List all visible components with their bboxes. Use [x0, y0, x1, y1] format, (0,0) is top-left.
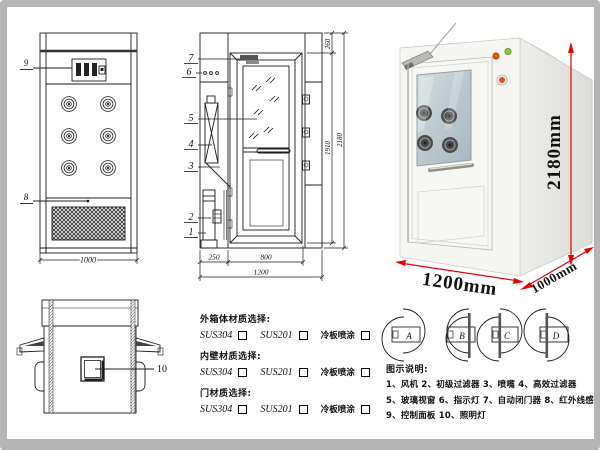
door-config-A[interactable]: A	[382, 309, 425, 361]
callout-4-label: 4	[189, 139, 194, 150]
legend-line: 1、风机 2、初级过滤器 3、喷嘴 4、高效过滤器	[386, 378, 594, 394]
material-option-label: SUS304	[200, 367, 235, 378]
material-group-outer-box: 外箱体材质选择: SUS304 SUS201 冷板喷涂	[200, 312, 370, 341]
door-wing-right	[136, 338, 163, 355]
material-group-title: 外箱体材质选择:	[200, 312, 370, 325]
material-option-label: 冷板喷涂	[321, 403, 358, 415]
material-options-row: SUS304 SUS201 冷板喷涂	[200, 329, 370, 341]
door-config-D[interactable]: D	[524, 309, 569, 361]
photo-height-dim: 2180mm	[544, 114, 565, 190]
door-section	[228, 53, 310, 243]
service-column	[201, 72, 230, 248]
material-option-label: 冷板喷涂	[321, 366, 358, 378]
door-config-C-label: C	[504, 331, 511, 341]
legend-title: 图示说明:	[386, 362, 594, 375]
material-checkbox[interactable]	[361, 331, 370, 340]
handle-left	[35, 362, 44, 391]
door-config-B[interactable]: B	[446, 309, 475, 361]
side-height-dimensions: 260 1910 2180	[307, 31, 348, 250]
front-width-dimension: 1000	[38, 253, 139, 265]
air-shower-spec-sheet: 9 8 1000	[0, 0, 600, 450]
glass-hatch-marks	[249, 77, 279, 139]
side-bottom-dimensions: 250 800 1200	[198, 246, 324, 281]
dim-2180: 2180	[336, 133, 344, 148]
control-panel	[72, 59, 106, 81]
legend-line: 5、玻璃视窗 6、指示灯 7、自动闭门器 8、红外线感应器	[386, 394, 594, 410]
photo-width-dim: 1200mm	[421, 269, 499, 300]
material-checkbox[interactable]	[299, 331, 308, 340]
material-checkbox[interactable]	[238, 368, 247, 377]
product-photo: 2180mm 1200mm 1000mm	[395, 23, 594, 300]
callout-2-label: 2	[189, 212, 194, 223]
material-group-inner-wall: 内壁材质选择: SUS304 SUS201 冷板喷涂	[200, 349, 370, 378]
material-checkbox[interactable]	[299, 368, 308, 377]
callout-1-label: 1	[189, 227, 194, 238]
material-group-door: 门材质选择: SUS304 SUS201 冷板喷涂	[200, 386, 370, 415]
red-indicator-light	[493, 53, 499, 59]
callout-8-label: 8	[24, 192, 29, 202]
material-option-label: SUS201	[260, 404, 295, 415]
legend-line: 9、控制面板 10、照明灯	[386, 409, 594, 425]
material-option-label: SUS304	[200, 404, 235, 415]
handle-right	[136, 362, 145, 391]
material-option-label: 冷板喷涂	[321, 329, 358, 341]
material-option-label: SUS304	[200, 330, 235, 341]
door-wing-left	[17, 338, 44, 355]
dim-1910: 1910	[324, 141, 332, 156]
material-group-title: 内壁材质选择:	[200, 349, 370, 362]
dim-260: 260	[324, 38, 332, 49]
front-elevation-view: 9 8 1000	[20, 33, 139, 265]
material-group-title: 门材质选择:	[200, 386, 370, 399]
material-checkbox[interactable]	[299, 405, 308, 414]
nozzle-array	[62, 97, 116, 176]
door-config-A-label: A	[405, 331, 412, 341]
dim-250: 250	[208, 253, 220, 262]
door-config-B-label: B	[459, 331, 465, 341]
door-config-C[interactable]: C	[477, 309, 522, 361]
door-closer	[240, 55, 259, 64]
material-options-row: SUS304 SUS201 冷板喷涂	[200, 366, 370, 378]
callout-6-label: 6	[187, 67, 192, 78]
dim-800: 800	[260, 253, 272, 262]
callout-3-label: 3	[188, 161, 194, 172]
material-options-row: SUS304 SUS201 冷板喷涂	[200, 403, 370, 415]
callout-9-label: 9	[24, 58, 29, 68]
callout-5-label: 5	[189, 113, 194, 124]
plan-view: 10	[17, 300, 167, 413]
door-config-diagrams: A B C	[382, 309, 569, 361]
front-width-dim-text: 1000	[80, 256, 96, 265]
material-option-label: SUS201	[260, 367, 295, 378]
dim-1200: 1200	[254, 268, 269, 277]
door-config-D-label: D	[552, 331, 560, 341]
callout-7-label: 7	[189, 53, 195, 64]
material-checkbox[interactable]	[238, 405, 247, 414]
emergency-button[interactable]	[499, 77, 505, 83]
material-option-label: SUS201	[260, 330, 295, 341]
side-section-view: 7 6 5 4 3 2 1	[182, 31, 348, 281]
green-indicator-light	[505, 48, 511, 54]
callout-10-label: 10	[157, 364, 167, 375]
return-air-grille	[52, 207, 125, 240]
material-checkbox[interactable]	[361, 405, 370, 414]
material-checkbox[interactable]	[238, 331, 247, 340]
material-checkbox[interactable]	[361, 368, 370, 377]
legend: 图示说明: 1、风机 2、初级过滤器 3、喷嘴 4、高效过滤器 5、玻璃视窗 6…	[386, 362, 594, 425]
material-selection: 外箱体材质选择: SUS304 SUS201 冷板喷涂 内壁材质选择: SUS3…	[200, 312, 370, 423]
door-window	[416, 70, 471, 166]
